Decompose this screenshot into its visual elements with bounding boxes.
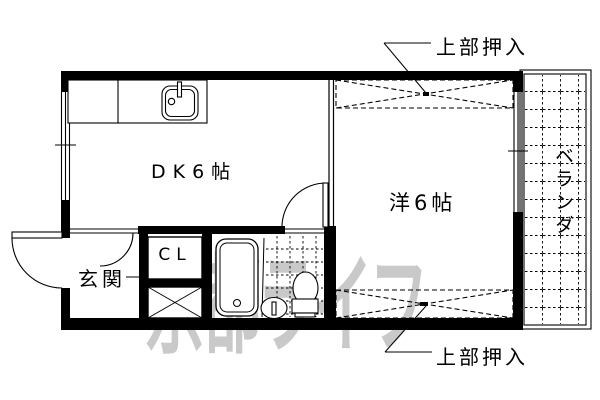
faucet-icon [178,82,182,97]
room-label-veranda: ベランダ [550,146,577,238]
leader-top [384,43,431,93]
wall-right-lower [513,212,523,330]
room-label-western: 洋6帖 [389,187,456,217]
kitchen-counter [68,80,207,123]
wall-bottom [62,318,520,330]
room-label-closet: CL [148,245,202,265]
upper-closet-bottom-box [336,290,513,318]
room-label-entrance: 玄関 [78,263,126,292]
bathtub-icon [216,239,258,316]
bathroom-door [282,183,328,227]
annotation-upper-closet-top: 上部押入 [436,31,528,60]
bathroom [216,236,323,319]
upper-closet-top-box [336,80,513,108]
bathroom-door-arc [282,183,326,227]
dk-western-partition [329,80,334,226]
wall-right-upper [513,71,523,92]
hall-to-dk-door [100,233,133,266]
floorplan-canvas: 京都ライフ [0,0,600,400]
kitchen-sink-icon [162,82,198,120]
entrance-door-leaf [12,232,62,238]
bathroom-doorway [285,229,325,233]
bathroom-door-leaf [323,183,328,227]
entrance-door-arc [12,238,62,288]
wall-dk-south-over-closet [138,226,212,234]
room-label-dk: DK6帖 [151,157,237,184]
washbasin-icon [261,298,287,319]
wall-closet-bath-divider [202,226,212,330]
floorplan-drawing [0,0,600,400]
annotation-upper-closet-bottom: 上部押入 [436,341,528,370]
wall-entrance-closet-divider [139,234,148,330]
toilet-icon [292,272,318,317]
wall-bath-east [324,226,336,330]
entrance-hall-doorway [65,229,138,233]
wall-top [62,71,520,80]
wall-dk-south-over-bath [212,226,285,234]
washbasin-tap [272,302,276,315]
wall-closet-storage-band [148,279,202,287]
hall-door-arc [100,233,133,266]
entrance-door [12,232,62,288]
storage-x-box [148,287,202,318]
